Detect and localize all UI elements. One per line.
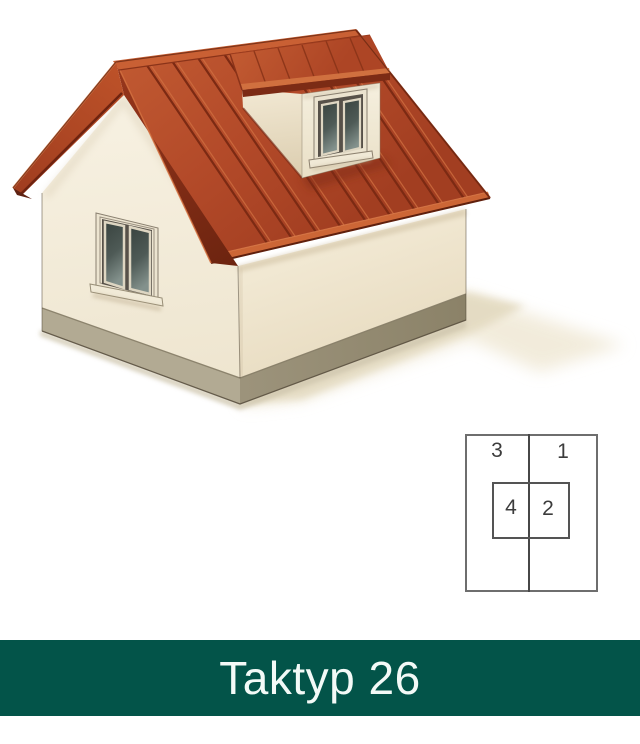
dormer-glass-left xyxy=(322,102,338,155)
window-glass-right xyxy=(130,227,150,294)
gable-window xyxy=(90,213,163,309)
banner-title: Taktyp 26 xyxy=(219,655,420,701)
window-glass-left xyxy=(105,222,124,288)
dormer-glass-right xyxy=(344,99,360,152)
house-illustration xyxy=(0,0,640,744)
title-banner: Taktyp 26 xyxy=(0,640,640,716)
page: 3 1 4 2 Taktyp 26 xyxy=(0,0,640,744)
dormer-window xyxy=(309,89,373,169)
